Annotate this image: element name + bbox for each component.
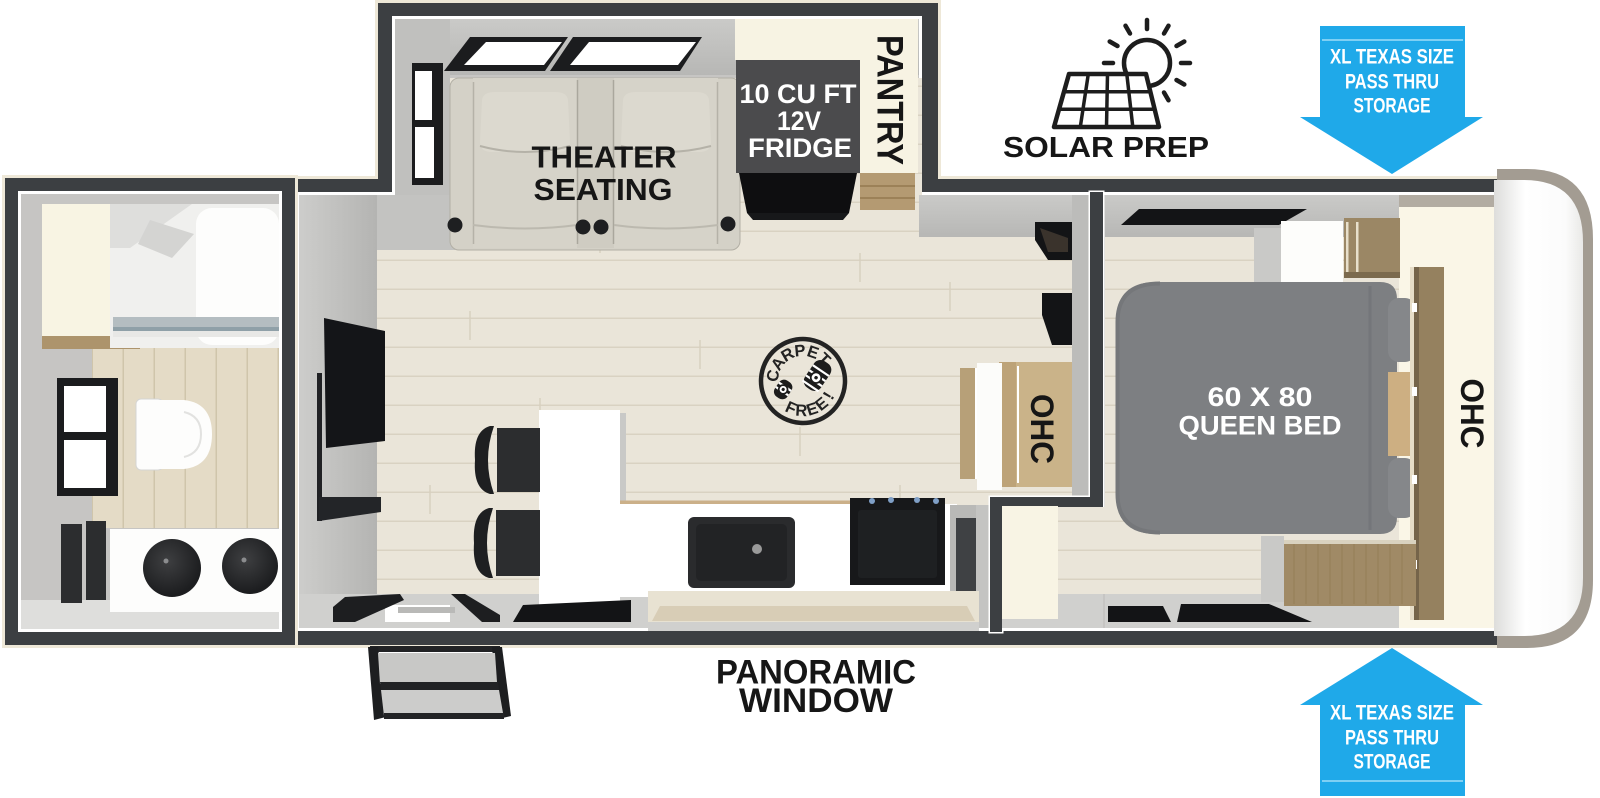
- svg-text:STORAGE: STORAGE: [1354, 95, 1431, 118]
- svg-text:SEATING: SEATING: [534, 172, 673, 207]
- svg-text:SOLAR PREP: SOLAR PREP: [1003, 132, 1209, 164]
- svg-text:10 CU FT: 10 CU FT: [740, 79, 857, 109]
- svg-text:PASS THRU: PASS THRU: [1345, 727, 1439, 750]
- svg-text:12V: 12V: [777, 106, 821, 136]
- svg-text:PANTRY: PANTRY: [870, 35, 911, 165]
- svg-text:XL TEXAS SIZE: XL TEXAS SIZE: [1330, 46, 1454, 69]
- svg-text:FRIDGE: FRIDGE: [748, 133, 852, 163]
- svg-text:QUEEN BED: QUEEN BED: [1179, 411, 1342, 441]
- svg-text:STORAGE: STORAGE: [1354, 751, 1431, 774]
- svg-text:OHC: OHC: [1024, 394, 1060, 464]
- svg-text:OHC: OHC: [1454, 379, 1490, 449]
- svg-text:PASS THRU: PASS THRU: [1345, 71, 1439, 94]
- svg-text:60 X 80: 60 X 80: [1208, 382, 1313, 412]
- svg-text:THEATER: THEATER: [532, 140, 677, 175]
- svg-text:WINDOW: WINDOW: [739, 682, 894, 720]
- svg-text:XL TEXAS SIZE: XL TEXAS SIZE: [1330, 702, 1454, 725]
